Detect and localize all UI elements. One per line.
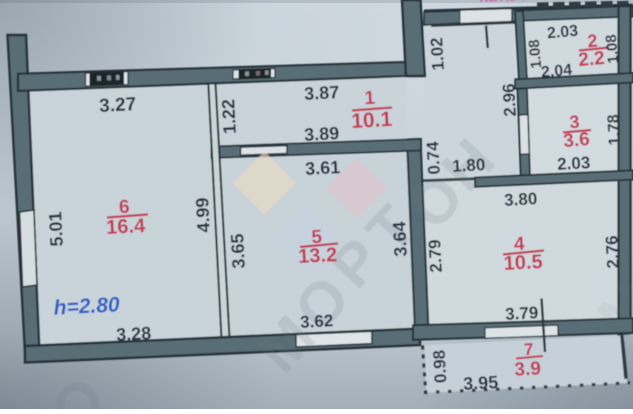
svg-text:10.1: 10.1 bbox=[351, 108, 393, 133]
svg-text:2.03: 2.03 bbox=[557, 153, 591, 174]
svg-text:3.6: 3.6 bbox=[562, 129, 590, 152]
svg-text:2.96: 2.96 bbox=[499, 83, 520, 117]
svg-text:1.22: 1.22 bbox=[218, 98, 240, 134]
svg-text:16.4: 16.4 bbox=[106, 215, 147, 239]
svg-text:2.79: 2.79 bbox=[425, 239, 446, 273]
svg-text:1.02: 1.02 bbox=[427, 37, 448, 71]
svg-text:4.99: 4.99 bbox=[192, 197, 214, 233]
svg-text:3.87: 3.87 bbox=[304, 82, 340, 104]
svg-text:3.62: 3.62 bbox=[300, 311, 334, 332]
svg-text:1: 1 bbox=[364, 88, 376, 110]
svg-text:2.04: 2.04 bbox=[540, 62, 573, 82]
svg-text:3.79: 3.79 bbox=[505, 303, 539, 324]
svg-text:10.5: 10.5 bbox=[503, 251, 543, 275]
svg-text:0.74: 0.74 bbox=[423, 140, 444, 175]
svg-text:1.80: 1.80 bbox=[452, 155, 486, 176]
svg-text:h=2.80: h=2.80 bbox=[53, 293, 120, 319]
svg-text:3.61: 3.61 bbox=[305, 157, 341, 179]
svg-text:2.2: 2.2 bbox=[577, 48, 605, 71]
svg-text:5.01: 5.01 bbox=[45, 211, 67, 247]
svg-text:0.98: 0.98 bbox=[430, 349, 451, 383]
svg-text:13.2: 13.2 bbox=[298, 244, 338, 268]
svg-text:2.76: 2.76 bbox=[602, 235, 623, 269]
svg-text:3.95: 3.95 bbox=[463, 372, 499, 394]
svg-text:1.78: 1.78 bbox=[605, 114, 624, 146]
svg-text:3.64: 3.64 bbox=[389, 221, 411, 257]
svg-text:3.27: 3.27 bbox=[99, 94, 137, 117]
svg-text:3.65: 3.65 bbox=[227, 233, 249, 269]
svg-text:3.80: 3.80 bbox=[504, 189, 538, 210]
svg-text:3.28: 3.28 bbox=[116, 323, 152, 345]
svg-text:3.9: 3.9 bbox=[514, 358, 541, 380]
svg-text:1.08: 1.08 bbox=[603, 34, 622, 65]
svg-text:3.89: 3.89 bbox=[304, 123, 340, 145]
svg-text:2.03: 2.03 bbox=[546, 23, 579, 43]
